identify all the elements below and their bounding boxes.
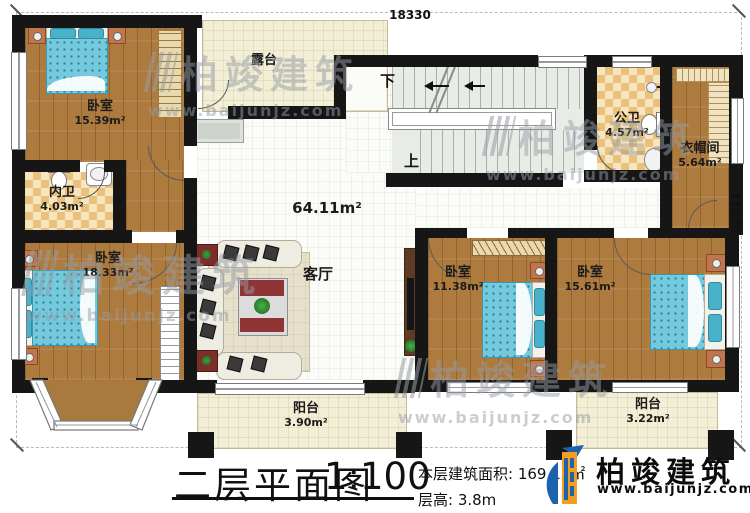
wardrobe [158,30,182,118]
nightstand [28,27,46,44]
coffee-table-band [240,280,284,296]
stair-direction-arrow [464,81,473,91]
room-label-bedroom-mid: 卧室11.38m² [416,266,500,294]
stair-down-label: 下 [380,70,395,91]
wall [363,380,415,393]
window [447,382,531,393]
room-label-bedroom-bl: 卧室18.33m² [66,252,150,280]
wall [184,178,197,233]
wardrobe [472,240,547,256]
room-label-living-area: 64.11m² [282,200,372,217]
plant [254,298,270,314]
wall [584,170,672,182]
wall [197,380,217,393]
bed-pillow [534,320,545,348]
room-label-terrace: 露台 [238,54,290,69]
title-underline [172,497,414,500]
wall [12,160,80,172]
window [726,266,740,348]
wall [228,106,346,119]
nightstand [706,254,726,272]
wall [648,228,735,238]
nightstand [108,27,126,44]
room-label-cloakroom: 衣帽间5.64m² [662,142,738,170]
wall [386,173,563,187]
floor-height-text: 层高: 3.8m [418,489,496,510]
stair-direction-arrow [424,81,433,91]
bay-window [25,378,175,434]
room-label-bath-inner: 内卫4.03m² [26,186,98,214]
terrace-step [194,119,244,143]
wall [415,228,428,392]
window [11,52,27,150]
stair-arrow-tail [473,85,485,87]
stair-flight-lower [420,130,584,173]
brand-url: www.baijunjz.com [597,482,750,497]
dimension-top: 18330 [378,8,442,22]
wall [334,55,392,67]
wall [12,15,202,28]
corridor-floor [415,188,660,228]
window [538,56,587,68]
room-label-bedroom-tl: 卧室15.39m² [58,100,142,128]
nightstand [706,350,726,368]
floor-plan-page: 18330 11020 [0,0,750,513]
tv-icon [407,278,414,330]
dimension-right: 11020 [728,192,742,262]
stair-flight-upper [392,67,584,109]
room-label-living: 客厅 [288,266,348,283]
wall [184,118,197,146]
stair-arrow-tail [433,85,449,87]
scale-label: 1:100 [324,455,431,498]
bed-pillow [708,282,722,310]
wall [557,228,614,238]
window [612,56,652,68]
bed-pillow [534,288,545,316]
wall [386,55,538,67]
wall [184,15,197,120]
room-label-bedroom-br: 卧室15.61m² [548,266,632,294]
bed-pillow [78,28,104,39]
shower-head-icon [646,82,657,93]
end-table [196,244,218,266]
coffee-table-band [240,318,284,332]
wall [545,228,557,392]
room-label-balcony-right: 阳台3.22m² [610,398,686,426]
wall [12,230,132,243]
stair-landing [388,108,556,130]
room-label-balcony-left: 阳台3.90m² [268,402,344,430]
window [11,288,27,360]
window [612,382,688,393]
bed-sheet-fold [80,271,95,343]
brand-logo-icon [541,444,591,510]
room-label-bath-public: 公卫4.57m² [592,112,662,140]
balcony-slider-door [215,383,365,395]
wall [184,230,197,393]
closet-shelf [160,286,180,388]
stair-up-label: 上 [404,150,419,171]
bed-pillow [50,28,76,39]
bed-pillow [708,314,722,342]
end-table [196,350,218,372]
clothes-rack [676,68,731,82]
